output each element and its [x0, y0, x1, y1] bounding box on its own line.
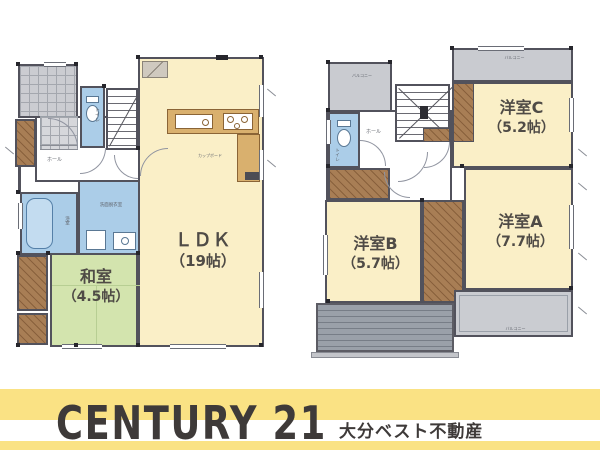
pillar-dot: [16, 251, 20, 255]
roof-deck-base: [311, 352, 459, 358]
pillar-dot: [74, 343, 78, 347]
pillar-dot: [46, 251, 50, 255]
pillar-dot: [569, 286, 573, 290]
counter-end: [245, 172, 259, 180]
bathroom: 浴室: [20, 192, 78, 255]
window: [259, 150, 264, 180]
balcony-top-right: バルコニー: [452, 48, 573, 82]
storage-closet: [17, 313, 48, 345]
pillar-dot: [136, 146, 140, 150]
window-tick: [267, 89, 276, 97]
room-c-name: 洋室C: [474, 98, 569, 119]
ldk-room: カップボード ＬＤＫ （19帖）: [138, 57, 264, 347]
closet-2f-small: [423, 128, 450, 142]
pillar-dot: [569, 46, 573, 50]
pillar-dot: [102, 84, 106, 88]
pillar-dot: [326, 299, 330, 303]
floorplan-image: トイレ カップボード ＬＤＫ （19帖）: [0, 0, 600, 450]
shoe-cabinet: [15, 119, 36, 167]
pillar-dot: [136, 343, 140, 347]
washer-drum: [121, 237, 129, 245]
window: [259, 272, 264, 308]
room-c-label: 洋室C （5.2帖）: [474, 98, 569, 137]
washroom: 洗面脱衣室: [78, 180, 140, 255]
closet-2f: [328, 168, 390, 200]
hall-2f-label: ホール: [366, 130, 381, 135]
toilet-1f-label: トイレ: [94, 107, 99, 122]
stairs-1f: [106, 88, 138, 150]
washitsu-label: 和室 （4.5帖）: [52, 267, 140, 306]
pillar-dot: [326, 164, 330, 168]
pillar-dot: [16, 343, 20, 347]
washroom-label: 洗面脱衣室: [80, 204, 142, 209]
kitchen-sink: [175, 114, 213, 129]
ldk-size: （19帖）: [153, 252, 253, 272]
pillar-dot: [259, 343, 263, 347]
cupboard-label: カップボード: [198, 154, 222, 158]
window: [569, 98, 574, 132]
pillar-dot: [420, 198, 424, 202]
room-c-size: （5.2帖）: [474, 119, 569, 137]
walk-in-closet: [422, 200, 464, 303]
pantry-corner: [142, 61, 168, 78]
kitchen-counter: [167, 109, 259, 134]
window: [170, 344, 226, 349]
toilet-2f: トイレ: [328, 112, 360, 168]
pillar-dot: [16, 190, 20, 194]
pillar-dot: [569, 164, 573, 168]
burner: [234, 123, 240, 129]
hall-1f-label: ホール: [47, 158, 62, 163]
pillar-dot: [460, 164, 464, 168]
toilet-tank: [337, 120, 351, 127]
kitchen-stove: [223, 113, 253, 130]
room-a-label: 洋室A （7.7帖）: [466, 212, 575, 251]
toilet-bowl: [337, 129, 351, 147]
toilet-2f-label: トイレ: [334, 148, 339, 162]
vanity: [86, 230, 106, 250]
pillar-dot: [450, 46, 454, 50]
washitsu-size: （4.5帖）: [52, 288, 140, 306]
ldk-label: ＬＤＫ （19帖）: [153, 229, 253, 272]
balcony-tl-label: バルコニー: [330, 74, 394, 78]
window: [323, 235, 328, 275]
pillar-dot: [74, 62, 78, 66]
burner: [227, 116, 234, 123]
wall-pillar: [216, 55, 228, 60]
washitsu-name: 和室: [52, 267, 140, 288]
window: [62, 344, 102, 349]
toilet-1f: [80, 86, 105, 148]
washing-machine: [113, 232, 136, 250]
pillar-dot: [259, 55, 263, 59]
company-name: 大分ベスト不動産: [339, 417, 483, 442]
window: [478, 46, 524, 51]
balcony-br-label: バルコニー: [456, 327, 575, 331]
balcony-bottom-right: バルコニー: [454, 290, 573, 337]
window-tick: [578, 183, 587, 191]
pillar-dot: [326, 108, 330, 112]
balcony-top-left: バルコニー: [328, 62, 392, 112]
room-a-size: （7.7帖）: [466, 233, 575, 251]
pillar-dot: [136, 55, 140, 59]
window: [44, 62, 66, 67]
window-tick: [578, 253, 587, 261]
window: [569, 205, 574, 249]
room-a-name: 洋室A: [466, 212, 575, 233]
room-b-size: （5.7帖）: [327, 255, 424, 273]
pillar-dot: [326, 60, 330, 64]
washitsu-room: 和室 （4.5帖）: [50, 253, 138, 347]
window-tick: [267, 160, 276, 168]
roof-deck: [316, 303, 454, 352]
pillar-dot: [16, 62, 20, 66]
entrance-porch: [18, 64, 78, 118]
balcony-tr-label: バルコニー: [454, 56, 575, 60]
stairs-diagonal: [109, 90, 141, 146]
window: [259, 85, 264, 117]
closet-room-c: [454, 84, 474, 142]
window: [326, 120, 331, 144]
toilet-tank: [86, 96, 99, 103]
room-b: 洋室B （5.7帖）: [325, 200, 422, 303]
genkan-step-line: [40, 149, 78, 150]
room-b-name: 洋室B: [327, 234, 424, 255]
window: [18, 203, 23, 229]
bath-label: 浴室: [64, 216, 69, 225]
window-tick: [5, 147, 14, 155]
bathtub: [26, 198, 53, 249]
pillar-dot: [388, 60, 392, 64]
room-c: 洋室C （5.2帖）: [452, 82, 573, 168]
ldk-name: ＬＤＫ: [153, 229, 253, 252]
window-tick: [578, 307, 587, 315]
window-tick: [578, 149, 587, 157]
room-b-label: 洋室B （5.7帖）: [327, 234, 424, 273]
storage-closet: [17, 255, 48, 311]
sink-drain: [202, 119, 209, 126]
pillar-dot: [136, 251, 140, 255]
room-a: 洋室A （7.7帖）: [464, 168, 573, 290]
century21-logo: CENTURY 21: [56, 400, 327, 446]
stairs-landing: [420, 106, 428, 119]
burner: [241, 116, 248, 123]
